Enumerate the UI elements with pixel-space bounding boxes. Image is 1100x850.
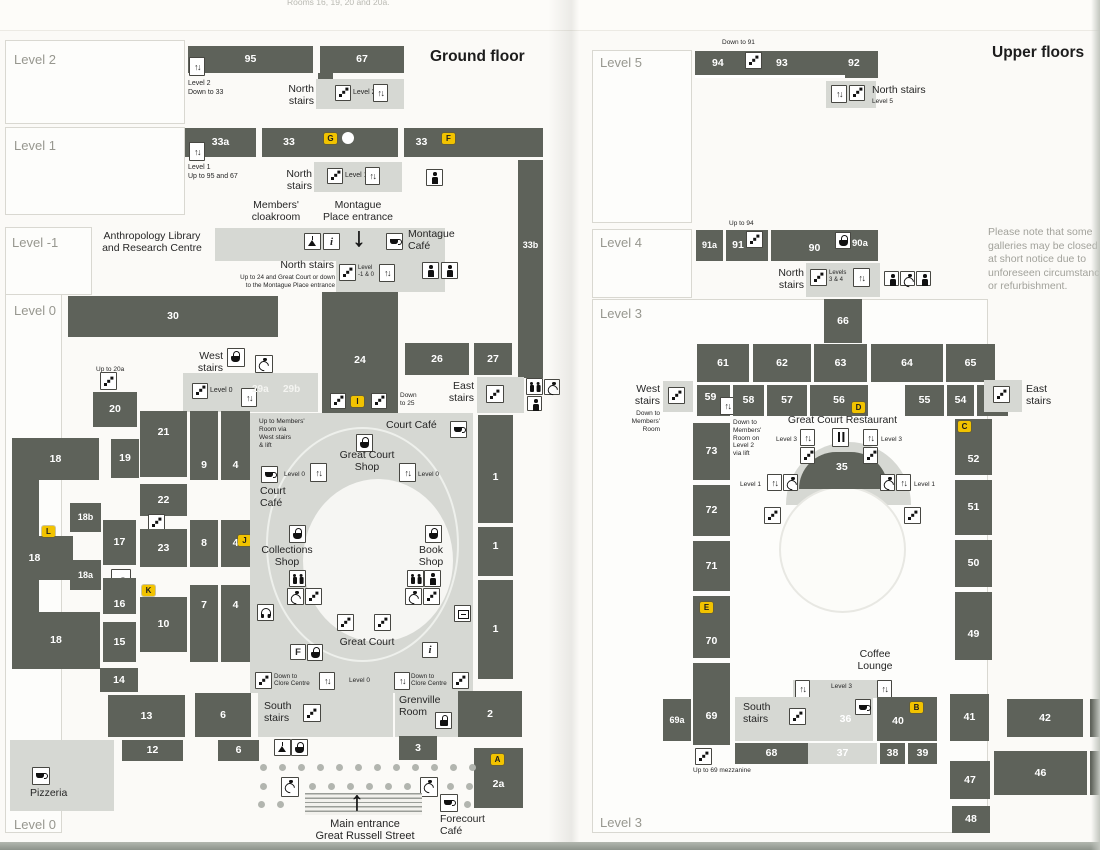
room-63: 63 xyxy=(814,344,867,382)
accessible-icon xyxy=(900,271,915,286)
stairs-icon xyxy=(305,588,322,605)
great-court-shop-label: Great Court Shop xyxy=(328,450,406,474)
accessible-icon xyxy=(287,588,304,605)
level-0-label: Level 0 xyxy=(14,304,56,319)
lift-icon xyxy=(896,474,911,491)
room-67: 67 xyxy=(320,46,404,73)
room-66: 66 xyxy=(824,299,862,343)
room-18b: 18b xyxy=(70,503,101,532)
great-court-label: Great Court xyxy=(328,637,406,649)
toilet-icon xyxy=(422,262,439,279)
down-to-members-note: Down to Members' Room on Level 2 via lif… xyxy=(733,419,771,458)
room-41: 41 xyxy=(950,694,989,741)
ground-floor-title: Ground floor xyxy=(430,48,525,66)
baby-change-icon xyxy=(424,570,441,587)
level-0-bottom-label: Level 0 xyxy=(14,818,56,833)
room-95: 95 xyxy=(188,46,313,73)
north-stairs-l5-level: Level 5 xyxy=(872,98,893,105)
room-20: 20 xyxy=(93,392,137,427)
colonnade-dot xyxy=(298,764,305,771)
room-35-label: 35 xyxy=(836,462,848,474)
up-to-members-note: Up to Members' Room via West stairs & li… xyxy=(259,418,321,450)
stairs-icon xyxy=(800,447,815,464)
cloakroom-icon xyxy=(274,739,291,756)
room-33-east: 33 xyxy=(404,128,543,157)
montague-down-arrow: ↓ xyxy=(352,224,378,260)
stairs-icon xyxy=(374,614,391,631)
room-94-label: 94 xyxy=(712,58,724,70)
room-49: 49 xyxy=(955,592,992,660)
colonnade-dot xyxy=(260,783,267,790)
room-62: 62 xyxy=(753,344,811,382)
room-1-south: 1 xyxy=(478,580,513,679)
room-68: 68 xyxy=(735,743,808,764)
entrance-badge-k: K xyxy=(142,585,155,596)
stairs-icon xyxy=(849,85,865,101)
pizzeria-label: Pizzeria xyxy=(30,788,67,800)
entrance-badge-i: I xyxy=(351,396,364,407)
entrance-badge-g: G xyxy=(324,133,337,144)
north-stairs-lminus1-level: Level -1 & 0 xyxy=(358,265,374,279)
lift-icon xyxy=(800,429,815,446)
stairs-icon xyxy=(371,393,387,409)
room-10: 10 xyxy=(140,597,187,652)
east-stairs-label: East stairs xyxy=(432,381,474,405)
room-69a: 69a xyxy=(663,699,691,741)
stairs-icon xyxy=(337,614,354,631)
lift-icon xyxy=(189,57,205,76)
room-46: 46 xyxy=(994,751,1087,795)
lift-icon xyxy=(373,84,388,102)
stairs-icon xyxy=(810,269,827,286)
shop-icon xyxy=(307,644,323,661)
cafe-icon xyxy=(261,466,278,483)
entrance-badge-d: D xyxy=(852,402,865,413)
lift-dot xyxy=(342,132,354,144)
room-8: 8 xyxy=(190,520,218,567)
room-21: 21 xyxy=(140,411,187,477)
mezzanine-strip xyxy=(695,75,845,78)
page-bottom-edge xyxy=(0,842,1100,850)
room-90a-label: 90a xyxy=(852,239,868,250)
forecourt-cafe-label: Forecourt Café xyxy=(440,814,502,838)
reading-room-dome xyxy=(779,486,906,613)
lift-icon xyxy=(877,680,892,698)
colonnade-dot xyxy=(412,764,419,771)
lift-icon xyxy=(379,264,395,282)
north-stairs-l5-label: North stairs xyxy=(872,85,926,97)
cafe-icon xyxy=(32,767,50,785)
lift-icon xyxy=(831,85,847,103)
west-stairs-label: West stairs xyxy=(179,351,223,375)
accessible-icon xyxy=(405,588,422,605)
north-stairs-l1-label: North stairs xyxy=(266,169,312,193)
room-6-west: 6 xyxy=(195,693,251,737)
level-1-label: Level 1 xyxy=(14,139,56,154)
colonnade-dot xyxy=(309,783,316,790)
accessible-icon xyxy=(255,355,273,373)
colonnade-dot xyxy=(328,783,335,790)
room-7: 7 xyxy=(190,585,218,662)
level-5-panel xyxy=(592,50,692,223)
colonnade-dot xyxy=(464,801,471,808)
great-court-restaurant-label: Great Court Restaurant xyxy=(770,415,915,427)
level-3-bottom-label: Level 3 xyxy=(600,816,642,831)
lift-icon xyxy=(795,680,810,698)
room-2: 2 xyxy=(458,691,522,737)
toilets-icon xyxy=(289,570,306,587)
lift-icon xyxy=(863,429,878,446)
room-23: 23 xyxy=(140,529,187,567)
top-caption: Rooms 16, 19, 20 and 20a. xyxy=(287,0,390,7)
colonnade-dot xyxy=(374,764,381,771)
entrance-badge-l: L xyxy=(42,526,55,537)
stairs-icon xyxy=(100,372,117,390)
montague-entrance-label: Montague Place entrance xyxy=(310,200,406,224)
room-73: 73 xyxy=(693,423,730,480)
stairs-icon xyxy=(339,264,356,281)
colonnade-dot xyxy=(260,764,267,771)
montague-cafe-label: Montague Café xyxy=(408,229,468,253)
room-61: 61 xyxy=(697,344,749,382)
room-39: 39 xyxy=(908,743,937,764)
room-26: 26 xyxy=(405,343,469,375)
restaurant-icon xyxy=(832,428,849,447)
room-15: 15 xyxy=(103,622,136,662)
level-4-label: Level 4 xyxy=(600,236,642,251)
levels-3-4-note: Levels 3 & 4 xyxy=(829,270,846,284)
room-48: 48 xyxy=(952,806,990,833)
coffee-lounge-level: Level 3 xyxy=(831,683,852,690)
stairs-icon xyxy=(423,588,440,605)
room-58: 58 xyxy=(733,385,764,416)
upper-floors-title: Upper floors xyxy=(992,44,1084,62)
baby-change-icon xyxy=(527,396,542,411)
cash-machine-icon xyxy=(454,605,471,622)
colonnade-dot xyxy=(447,783,454,790)
pizzeria-area xyxy=(10,740,114,811)
down-to-clore-west: Down to Clore Centre xyxy=(274,673,310,687)
room-38: 38 xyxy=(880,743,905,764)
colonnade-dot xyxy=(336,764,343,771)
room-12: 12 xyxy=(122,740,183,761)
stairs-icon xyxy=(303,704,321,722)
room-13: 13 xyxy=(108,695,185,737)
members-cloakroom-label: Members' cloakroom xyxy=(246,200,306,224)
entrance-badge-f: F xyxy=(442,133,455,144)
cafe-icon xyxy=(440,794,458,812)
f-marker-icon: F xyxy=(290,644,306,660)
west-stairs-level: Level 0 xyxy=(210,387,233,395)
stairs-icon xyxy=(746,231,763,248)
south-stairs-l3-label: South stairs xyxy=(743,702,783,726)
entrance-badge-c: C xyxy=(958,421,971,432)
coffee-lounge-label: Coffee Lounge xyxy=(848,649,902,673)
east-stairs-l3-label: East stairs xyxy=(1026,384,1066,408)
lift-icon xyxy=(319,672,335,690)
colonnade-dot xyxy=(385,783,392,790)
colonnade-dot xyxy=(258,801,265,808)
stairs-icon xyxy=(668,387,685,404)
room-57: 57 xyxy=(767,385,807,416)
room-54: 54 xyxy=(947,385,974,416)
main-entrance-arrow: ↑ xyxy=(350,788,372,818)
room-92-label: 92 xyxy=(848,58,860,70)
closure-note: Please note that some galleries may be c… xyxy=(988,226,1100,294)
shop-icon xyxy=(835,232,851,249)
up-to-69-note: Up to 69 mezzanine xyxy=(693,767,751,774)
up-to-94-note: Up to 94 xyxy=(729,220,754,227)
anthropology-label: Anthropology Library and Research Centre xyxy=(92,231,212,255)
room-4-south: 4 xyxy=(221,585,250,662)
room-18-mid: 18 xyxy=(12,536,73,580)
restaurant-level3-west: Level 3 xyxy=(776,436,797,443)
room-65: 65 xyxy=(946,344,995,382)
colonnade-dot xyxy=(450,764,457,771)
entrance-badge-a: A xyxy=(491,754,504,765)
colonnade-dot xyxy=(404,783,411,790)
stairs-icon xyxy=(192,383,208,399)
restaurant-level1-west: Level 1 xyxy=(740,481,761,488)
cafe-icon xyxy=(855,699,871,715)
room-22: 22 xyxy=(140,484,187,516)
cafe-icon xyxy=(450,421,467,438)
main-entrance-label: Main entrance Great Russell Street xyxy=(300,818,430,843)
toilet-icon xyxy=(884,271,899,286)
lift-icon xyxy=(394,672,410,690)
room-37-area: 37 xyxy=(808,743,877,764)
accessible-icon xyxy=(880,474,895,491)
entrance-badge-e: E xyxy=(700,602,713,613)
colonnade-dot xyxy=(317,764,324,771)
information-icon xyxy=(323,233,340,250)
room-71: 71 xyxy=(693,541,730,591)
down-to-25-note: Down to 25 xyxy=(400,392,417,407)
west-stairs-l3-label: West stairs xyxy=(618,384,660,408)
lift-level-note-west: Level 0 xyxy=(284,471,305,478)
colonnade-dot xyxy=(279,764,286,771)
shop-icon xyxy=(227,348,245,367)
room-50: 50 xyxy=(955,540,992,587)
level-3-label: Level 3 xyxy=(600,307,642,322)
room-30: 30 xyxy=(68,296,278,337)
down-to-clore-east: Down to Clore Centre xyxy=(411,673,447,687)
room-29a-label: 29a xyxy=(252,384,269,395)
room-18-north: 18 xyxy=(12,438,99,480)
lift-icon xyxy=(767,474,782,491)
baby-change-icon xyxy=(916,271,931,286)
down-to-91-note: Down to 91 xyxy=(722,39,755,46)
room-27: 27 xyxy=(474,343,512,375)
stairs-icon xyxy=(764,507,781,524)
restaurant-level1-east: Level 1 xyxy=(914,481,935,488)
colonnade-dot xyxy=(277,801,284,808)
room-93-label: 93 xyxy=(776,58,788,70)
room-42: 42 xyxy=(1007,699,1083,737)
shop-icon xyxy=(425,525,442,543)
lift-icon xyxy=(399,463,416,482)
colonnade-dot xyxy=(466,783,473,790)
room-29b-label: 29b xyxy=(283,384,300,395)
room-72: 72 xyxy=(693,485,730,536)
room-17: 17 xyxy=(103,520,136,565)
room-47: 47 xyxy=(950,761,990,799)
stairs-icon xyxy=(452,672,469,689)
page-top-edge xyxy=(0,0,1100,31)
book-shop-label: Book Shop xyxy=(408,545,454,569)
lockers-icon xyxy=(435,712,452,729)
room-51: 51 xyxy=(955,480,992,535)
stairs-icon xyxy=(745,52,762,69)
museum-map-leaflet: Rooms 16, 19, 20 and 20a. Level 2Level 1… xyxy=(0,0,1100,850)
north-stairs-l4-label: North stairs xyxy=(764,268,804,292)
page-right-edge xyxy=(1091,0,1100,850)
cloakroom-icon xyxy=(304,233,321,250)
room-4-north: 4 xyxy=(221,411,250,480)
room-18a: 18a xyxy=(70,560,101,590)
room-1-north: 1 xyxy=(478,415,513,523)
lift-level-note-east: Level 0 xyxy=(418,471,439,478)
north-stairs-lminus1-label: North stairs xyxy=(256,260,334,272)
room-33b: 33b xyxy=(518,160,543,378)
stairs-icon xyxy=(695,748,712,765)
colonnade-dot xyxy=(355,764,362,771)
stairs-icon xyxy=(486,385,504,403)
stairs-icon xyxy=(327,168,343,184)
colonnade-dot xyxy=(393,764,400,771)
north-stairs-lminus1-note: Up to 24 and Great Court or down to the … xyxy=(213,274,335,289)
collections-shop-label: Collections Shop xyxy=(254,545,320,569)
west-stairs-l3-note: Down to Members' Room xyxy=(616,410,660,433)
shop-icon xyxy=(291,739,308,756)
room-69: 69 xyxy=(693,663,730,745)
room-91a: 91a xyxy=(696,230,723,261)
accessible-icon xyxy=(544,379,560,395)
room-6-south: 6 xyxy=(218,740,259,761)
north-stairs-l2-label: North stairs xyxy=(268,84,314,108)
room-55: 55 xyxy=(905,385,944,416)
stairs-icon xyxy=(789,708,806,725)
baby-change-icon xyxy=(441,262,458,279)
cafe-icon xyxy=(386,233,403,250)
stairs-icon xyxy=(255,672,272,689)
room-64: 64 xyxy=(871,344,943,382)
shop-icon xyxy=(289,525,306,543)
walking-person-icon xyxy=(426,169,443,186)
room-9: 9 xyxy=(190,411,218,480)
stairs-icon xyxy=(330,393,346,409)
toilets-icon xyxy=(526,378,543,395)
room-16: 16 xyxy=(103,578,136,614)
level-minus1-label: Level -1 xyxy=(12,236,58,251)
restaurant-level3-east: Level 3 xyxy=(881,436,902,443)
lift-icon xyxy=(189,142,205,161)
stairs-icon xyxy=(993,386,1010,403)
south-stairs-label: South stairs xyxy=(264,701,304,725)
court-cafe-west-label: Court Café xyxy=(260,486,302,510)
court-cafe-north-label: Court Café xyxy=(386,420,437,432)
great-court-level-note: Level 0 xyxy=(349,677,370,684)
level-2-label: Level 2 xyxy=(14,53,56,68)
room-19: 19 xyxy=(111,439,139,478)
information-icon xyxy=(422,642,438,658)
colonnade-dot xyxy=(469,764,476,771)
audio-guide-icon xyxy=(257,604,274,621)
level-2-lift-note: Level 2 Down to 33 xyxy=(188,80,223,97)
stairs-icon xyxy=(863,447,878,464)
stairs-icon xyxy=(335,85,351,101)
lift-icon xyxy=(310,463,327,482)
entrance-badge-b: B xyxy=(910,702,923,713)
lift-icon xyxy=(853,268,870,287)
accessible-lift-icon xyxy=(420,777,438,797)
accessible-icon xyxy=(783,474,798,491)
level-1-lift-note: Level 1 Up to 95 and 67 xyxy=(188,164,238,181)
room-1-mid: 1 xyxy=(478,527,513,576)
room-40: 40 xyxy=(877,697,937,741)
toilets-icon xyxy=(407,570,424,587)
room-18-south: 18 xyxy=(12,612,100,669)
accessible-lift-icon xyxy=(281,777,299,797)
room-3: 3 xyxy=(399,736,437,760)
room-14: 14 xyxy=(100,668,138,692)
level-5-label: Level 5 xyxy=(600,56,642,71)
colonnade-dot xyxy=(431,764,438,771)
lift-icon xyxy=(365,167,380,185)
stairs-icon xyxy=(904,507,921,524)
